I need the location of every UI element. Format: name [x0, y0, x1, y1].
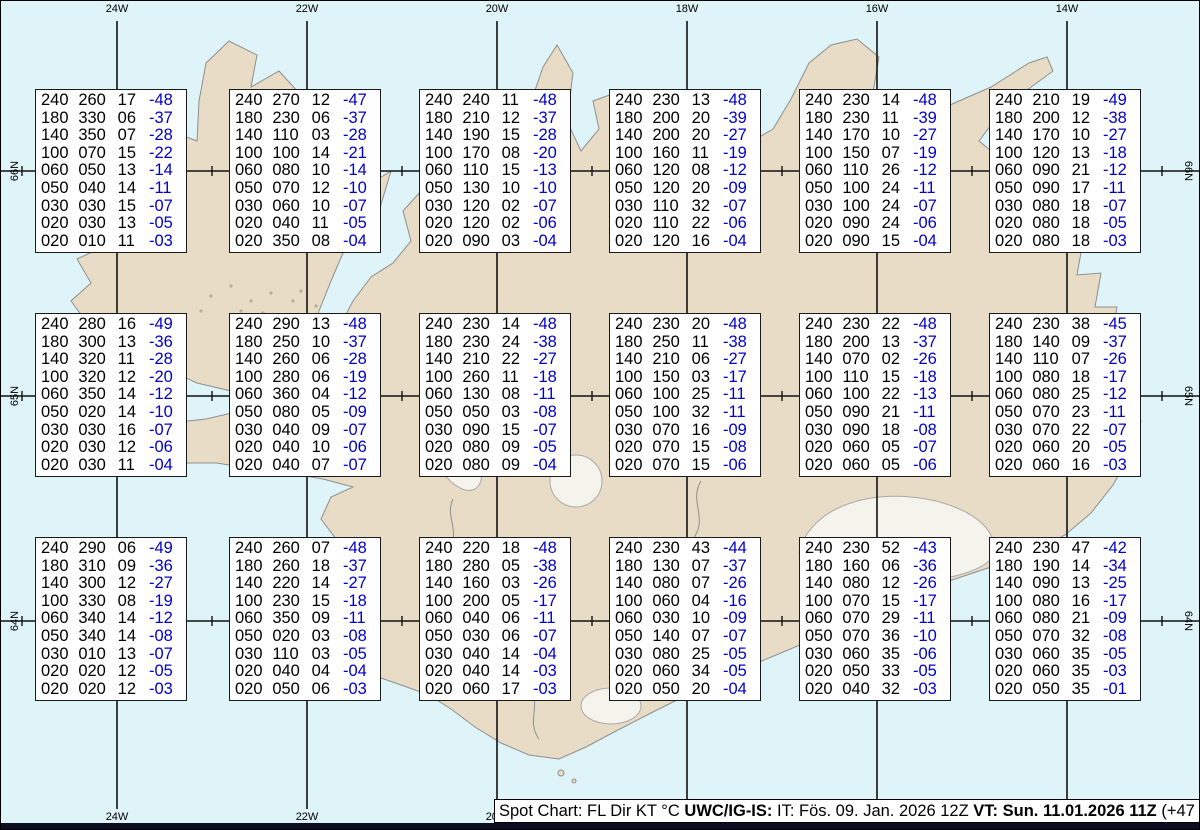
kt-value: 24 — [882, 198, 906, 215]
fl-value: 100 — [235, 145, 265, 162]
spot-box: 24023047-4218019014-3414009013-251000801… — [989, 537, 1141, 701]
dir-value: 080 — [1032, 233, 1064, 250]
kt-value: 11 — [502, 369, 526, 386]
spot-row: 18016006-36 — [805, 558, 945, 575]
fl-value: 100 — [615, 593, 645, 610]
temp-value: -49 — [1103, 92, 1135, 109]
temp-value: -26 — [913, 351, 945, 368]
temp-value: -27 — [1103, 127, 1135, 144]
dir-value: 090 — [1032, 180, 1064, 197]
dir-value: 300 — [78, 334, 110, 351]
fl-value: 020 — [235, 215, 265, 232]
dir-value: 270 — [272, 92, 304, 109]
kt-value: 11 — [692, 145, 716, 162]
dir-value: 040 — [272, 215, 304, 232]
spot-row: 02008009-04 — [425, 457, 565, 474]
temp-value: -22 — [149, 145, 181, 162]
spot-row: 03003016-07 — [41, 422, 181, 439]
fl-value: 100 — [41, 593, 71, 610]
fl-value: 240 — [235, 540, 265, 557]
temp-value: -07 — [533, 628, 565, 645]
spot-row: 05004014-11 — [41, 180, 181, 197]
spot-row: 02005006-03 — [235, 681, 375, 698]
temp-value: -05 — [533, 439, 565, 456]
kt-value: 16 — [692, 422, 716, 439]
temp-value: -06 — [913, 215, 945, 232]
temp-value: -10 — [343, 180, 375, 197]
spot-row: 03009018-08 — [805, 422, 945, 439]
fl-value: 020 — [235, 439, 265, 456]
kt-value: 09 — [502, 439, 526, 456]
spot-row: 05002014-10 — [41, 404, 181, 421]
temp-value: -37 — [343, 558, 375, 575]
fl-value: 140 — [235, 127, 265, 144]
fl-value: 060 — [615, 162, 645, 179]
temp-value: -48 — [913, 92, 945, 109]
temp-value: -12 — [1103, 162, 1135, 179]
fl-value: 060 — [615, 610, 645, 627]
spot-row: 24023014-48 — [805, 92, 945, 109]
spot-row: 24029006-49 — [41, 540, 181, 557]
lon-label-20w-top: 20W — [486, 3, 509, 15]
temp-value: -21 — [343, 145, 375, 162]
spot-row: 02006016-03 — [995, 457, 1135, 474]
dir-value: 290 — [272, 316, 304, 333]
fl-value: 030 — [425, 646, 455, 663]
spot-row: 06012008-12 — [615, 162, 755, 179]
spot-row: 18025011-38 — [615, 334, 755, 351]
temp-value: -19 — [723, 145, 755, 162]
temp-value: -05 — [149, 663, 181, 680]
spot-row: 14035007-28 — [41, 127, 181, 144]
dir-value: 070 — [842, 610, 874, 627]
temp-value: -17 — [913, 593, 945, 610]
fl-value: 020 — [995, 233, 1025, 250]
spot-row: 14019015-28 — [425, 127, 565, 144]
kt-value: 22 — [692, 215, 716, 232]
fl-value: 030 — [425, 198, 455, 215]
temp-value: -04 — [343, 233, 375, 250]
dir-value: 080 — [1032, 215, 1064, 232]
kt-value: 09 — [1072, 334, 1096, 351]
dir-value: 190 — [1032, 558, 1064, 575]
dir-value: 080 — [272, 404, 304, 421]
kt-value: 02 — [882, 351, 906, 368]
fl-value: 020 — [235, 681, 265, 698]
temp-value: -06 — [149, 439, 181, 456]
kt-value: 14 — [882, 92, 906, 109]
temp-value: -11 — [913, 180, 945, 197]
kt-value: 21 — [1072, 162, 1096, 179]
kt-value: 05 — [312, 404, 336, 421]
kt-value: 10 — [882, 127, 906, 144]
spot-box: 24022018-4818028005-3814016003-261002000… — [419, 537, 571, 701]
dir-value: 100 — [652, 386, 684, 403]
spot-row: 02005035-01 — [995, 681, 1135, 698]
dir-value: 080 — [652, 646, 684, 663]
kt-value: 24 — [882, 215, 906, 232]
spot-row: 05002003-08 — [235, 628, 375, 645]
spot-row: 24029013-48 — [235, 316, 375, 333]
fl-value: 020 — [41, 233, 71, 250]
kt-value: 17 — [118, 92, 142, 109]
fl-value: 180 — [615, 334, 645, 351]
spot-row: 02002012-03 — [41, 681, 181, 698]
temp-value: -48 — [533, 316, 565, 333]
fl-value: 020 — [805, 215, 835, 232]
dir-value: 100 — [272, 145, 304, 162]
spot-row: 02012002-06 — [425, 215, 565, 232]
fl-value: 240 — [995, 316, 1025, 333]
fl-value: 240 — [805, 540, 835, 557]
temp-value: -20 — [149, 369, 181, 386]
spot-row: 14011003-28 — [235, 127, 375, 144]
fl-value: 100 — [235, 369, 265, 386]
spot-row: 03011032-07 — [615, 198, 755, 215]
temp-value: -26 — [1103, 351, 1135, 368]
kt-value: 03 — [692, 369, 716, 386]
dir-value: 320 — [78, 369, 110, 386]
dir-value: 010 — [78, 233, 110, 250]
dir-value: 110 — [652, 215, 684, 232]
fl-value: 140 — [235, 351, 265, 368]
temp-value: -38 — [1103, 110, 1135, 127]
spot-row: 05009017-11 — [995, 180, 1135, 197]
temp-value: -06 — [913, 457, 945, 474]
spot-row: 14022014-27 — [235, 575, 375, 592]
dir-value: 260 — [272, 540, 304, 557]
dir-value: 070 — [652, 457, 684, 474]
temp-value: -36 — [149, 558, 181, 575]
fl-value: 240 — [805, 92, 835, 109]
lat-label-65n-right: 65N — [1182, 386, 1194, 406]
temp-value: -14 — [343, 162, 375, 179]
fl-value: 140 — [805, 127, 835, 144]
kt-value: 08 — [502, 145, 526, 162]
spot-row: 24023020-48 — [615, 316, 755, 333]
spot-row: 24027012-47 — [235, 92, 375, 109]
fl-value: 030 — [805, 646, 835, 663]
temp-value: -45 — [1103, 316, 1135, 333]
kt-value: 15 — [502, 162, 526, 179]
spot-row: 10032012-20 — [41, 369, 181, 386]
temp-value: -03 — [149, 681, 181, 698]
kt-value: 14 — [118, 610, 142, 627]
temp-value: -48 — [343, 316, 375, 333]
fl-value: 180 — [995, 110, 1025, 127]
temp-value: -04 — [723, 681, 755, 698]
dir-value: 230 — [272, 110, 304, 127]
dir-value: 230 — [462, 334, 494, 351]
dir-value: 090 — [842, 404, 874, 421]
spot-row: 18033006-37 — [41, 110, 181, 127]
kt-value: 19 — [1072, 92, 1096, 109]
dir-value: 020 — [78, 404, 110, 421]
fl-value: 140 — [805, 575, 835, 592]
spot-row: 03006035-05 — [995, 646, 1135, 663]
dir-value: 130 — [462, 180, 494, 197]
fl-value: 240 — [615, 316, 645, 333]
kt-value: 07 — [312, 457, 336, 474]
kt-value: 06 — [312, 351, 336, 368]
fl-value: 100 — [41, 145, 71, 162]
kt-value: 03 — [312, 646, 336, 663]
kt-value: 04 — [312, 386, 336, 403]
dir-value: 280 — [272, 369, 304, 386]
kt-value: 32 — [692, 404, 716, 421]
kt-value: 18 — [312, 558, 336, 575]
temp-value: -16 — [723, 593, 755, 610]
spot-row: 24023047-42 — [995, 540, 1135, 557]
kt-value: 13 — [1072, 575, 1096, 592]
dir-value: 090 — [462, 233, 494, 250]
temp-value: -19 — [343, 369, 375, 386]
lon-label-24w-top: 24W — [106, 3, 129, 15]
dir-value: 190 — [462, 127, 494, 144]
dir-value: 050 — [652, 681, 684, 698]
kt-value: 22 — [882, 386, 906, 403]
kt-value: 14 — [502, 316, 526, 333]
temp-value: -10 — [913, 628, 945, 645]
temp-value: -18 — [913, 369, 945, 386]
fl-value: 020 — [425, 215, 455, 232]
fl-value: 050 — [805, 404, 835, 421]
temp-value: -27 — [343, 575, 375, 592]
kt-value: 13 — [882, 334, 906, 351]
fl-value: 180 — [425, 110, 455, 127]
spot-row: 18031009-36 — [41, 558, 181, 575]
temp-value: -12 — [149, 610, 181, 627]
dir-value: 230 — [842, 316, 874, 333]
temp-value: -37 — [723, 558, 755, 575]
temp-value: -04 — [149, 457, 181, 474]
spot-row: 10010014-21 — [235, 145, 375, 162]
dir-value: 020 — [78, 681, 110, 698]
spot-row: 06011015-13 — [425, 162, 565, 179]
dir-value: 350 — [78, 127, 110, 144]
fl-value: 020 — [995, 681, 1025, 698]
spot-row: 02007015-06 — [615, 457, 755, 474]
temp-value: -44 — [723, 540, 755, 557]
dir-value: 210 — [1032, 92, 1064, 109]
spot-row: 18014009-37 — [995, 334, 1135, 351]
kt-value: 11 — [118, 351, 142, 368]
dir-value: 060 — [652, 593, 684, 610]
kt-value: 16 — [118, 422, 142, 439]
temp-value: -18 — [343, 593, 375, 610]
dir-value: 110 — [1032, 351, 1064, 368]
kt-value: 16 — [692, 233, 716, 250]
kt-value: 15 — [692, 439, 716, 456]
fl-value: 100 — [995, 369, 1025, 386]
fl-value: 020 — [235, 233, 265, 250]
temp-value: -43 — [913, 540, 945, 557]
dir-value: 040 — [272, 422, 304, 439]
fl-value: 240 — [995, 540, 1025, 557]
kt-value: 43 — [692, 540, 716, 557]
spot-row: 05009021-11 — [805, 404, 945, 421]
lat-label-64n-right: 64N — [1182, 611, 1194, 631]
temp-value: -48 — [533, 540, 565, 557]
temp-value: -37 — [1103, 334, 1135, 351]
temp-value: -09 — [723, 180, 755, 197]
spot-row: 18013007-37 — [615, 558, 755, 575]
fl-value: 030 — [995, 646, 1025, 663]
fl-value: 060 — [425, 610, 455, 627]
temp-value: -07 — [533, 198, 565, 215]
spot-row: 24023013-48 — [615, 92, 755, 109]
lat-label-65n-left: 65N — [9, 386, 21, 406]
dir-value: 170 — [842, 127, 874, 144]
temp-value: -13 — [913, 386, 945, 403]
spot-box: 24026017-4818033006-3714035007-281000701… — [35, 89, 187, 253]
fl-value: 020 — [235, 457, 265, 474]
dir-value: 060 — [1032, 663, 1064, 680]
fl-value: 180 — [41, 334, 71, 351]
dir-value: 350 — [272, 610, 304, 627]
kt-value: 14 — [502, 646, 526, 663]
fl-value: 180 — [615, 558, 645, 575]
fl-value: 020 — [425, 663, 455, 680]
spot-box: 24028016-4918030013-3614032011-281003201… — [35, 313, 187, 477]
temp-value: -10 — [533, 180, 565, 197]
kt-value: 15 — [882, 593, 906, 610]
temp-value: -06 — [723, 215, 755, 232]
kt-value: 05 — [882, 439, 906, 456]
dir-value: 080 — [272, 162, 304, 179]
fl-value: 140 — [615, 575, 645, 592]
fl-value: 030 — [995, 198, 1025, 215]
lat-label-66n-right: 66N — [1182, 161, 1194, 181]
fl-value: 020 — [995, 439, 1025, 456]
lon-label-14w-top: 14W — [1056, 3, 1079, 15]
fl-value: 050 — [41, 180, 71, 197]
fl-value: 020 — [615, 457, 645, 474]
spot-row: 05034014-08 — [41, 628, 181, 645]
fl-value: 020 — [805, 233, 835, 250]
spot-row: 18023006-37 — [235, 110, 375, 127]
temp-value: -05 — [343, 215, 375, 232]
dir-value: 030 — [652, 610, 684, 627]
spot-row: 24023052-43 — [805, 540, 945, 557]
temp-value: -17 — [1103, 369, 1135, 386]
temp-value: -03 — [913, 681, 945, 698]
fl-value: 060 — [995, 610, 1025, 627]
fl-value: 030 — [805, 422, 835, 439]
temp-value: -27 — [723, 351, 755, 368]
kt-value: 38 — [1072, 316, 1096, 333]
kt-value: 10 — [312, 198, 336, 215]
spot-row: 24026007-48 — [235, 540, 375, 557]
fl-value: 030 — [41, 198, 71, 215]
temp-value: -07 — [343, 457, 375, 474]
fl-value: 100 — [425, 369, 455, 386]
spot-row: 02009015-04 — [805, 233, 945, 250]
dir-value: 120 — [652, 233, 684, 250]
fl-value: 020 — [995, 457, 1025, 474]
temp-value: -11 — [913, 610, 945, 627]
kt-value: 12 — [312, 180, 336, 197]
temp-value: -20 — [533, 145, 565, 162]
kt-value: 25 — [692, 386, 716, 403]
spot-row: 10012013-18 — [995, 145, 1135, 162]
kt-value: 13 — [118, 646, 142, 663]
kt-value: 06 — [118, 110, 142, 127]
dir-value: 060 — [842, 439, 874, 456]
spot-row: 24023038-45 — [995, 316, 1135, 333]
temp-value: -03 — [1103, 457, 1135, 474]
fl-value: 060 — [235, 386, 265, 403]
spot-chart-canvas: 24W 22W 20W 18W 16W 14W 24W 22W 20W 18W … — [0, 0, 1200, 830]
dir-value: 050 — [1032, 681, 1064, 698]
temp-value: -07 — [913, 198, 945, 215]
fl-value: 030 — [995, 422, 1025, 439]
kt-value: 17 — [1072, 180, 1096, 197]
spot-box: 24023014-4818023011-3914017010-271001500… — [799, 89, 951, 253]
spot-box: 24023052-4318016006-3614008012-261000701… — [799, 537, 951, 701]
spot-row: 10023015-18 — [235, 593, 375, 610]
spot-row: 10011015-18 — [805, 369, 945, 386]
temp-value: -11 — [913, 404, 945, 421]
dir-value: 250 — [652, 334, 684, 351]
fl-value: 240 — [41, 540, 71, 557]
kt-value: 12 — [502, 110, 526, 127]
spot-row: 02006034-05 — [615, 663, 755, 680]
dir-value: 060 — [1032, 457, 1064, 474]
spot-row: 05007023-11 — [995, 404, 1135, 421]
fl-value: 180 — [995, 558, 1025, 575]
spot-row: 03004009-07 — [235, 422, 375, 439]
spot-row: 10006004-16 — [615, 593, 755, 610]
spot-row: 02001011-03 — [41, 233, 181, 250]
temp-value: -27 — [913, 127, 945, 144]
temp-value: -03 — [1103, 663, 1135, 680]
dir-value: 090 — [1032, 162, 1064, 179]
kt-value: 15 — [312, 593, 336, 610]
spot-row: 03006010-07 — [235, 198, 375, 215]
dir-value: 260 — [78, 92, 110, 109]
dir-value: 020 — [78, 663, 110, 680]
kt-value: 18 — [1072, 215, 1096, 232]
dir-value: 170 — [462, 145, 494, 162]
lat-label-66n-left: 66N — [9, 161, 21, 181]
dir-value: 240 — [462, 92, 494, 109]
temp-value: -11 — [343, 610, 375, 627]
dir-value: 160 — [842, 558, 874, 575]
temp-value: -05 — [1103, 439, 1135, 456]
spot-row: 06008025-12 — [995, 386, 1135, 403]
spot-row: 06011026-12 — [805, 162, 945, 179]
kt-value: 06 — [692, 351, 716, 368]
spot-row: 10017008-20 — [425, 145, 565, 162]
kt-value: 11 — [882, 110, 906, 127]
kt-value: 13 — [118, 215, 142, 232]
kt-value: 07 — [692, 558, 716, 575]
fl-value: 140 — [425, 127, 455, 144]
fl-value: 180 — [615, 110, 645, 127]
kt-value: 15 — [118, 198, 142, 215]
fl-value: 050 — [425, 628, 455, 645]
spot-row: 10008018-17 — [995, 369, 1135, 386]
spot-row: 03008018-07 — [995, 198, 1135, 215]
temp-value: -07 — [149, 646, 181, 663]
kt-value: 17 — [502, 681, 526, 698]
dir-value: 230 — [652, 92, 684, 109]
dir-value: 030 — [78, 422, 110, 439]
spot-row: 02009003-04 — [425, 233, 565, 250]
dir-value: 230 — [462, 316, 494, 333]
fl-value: 060 — [425, 386, 455, 403]
